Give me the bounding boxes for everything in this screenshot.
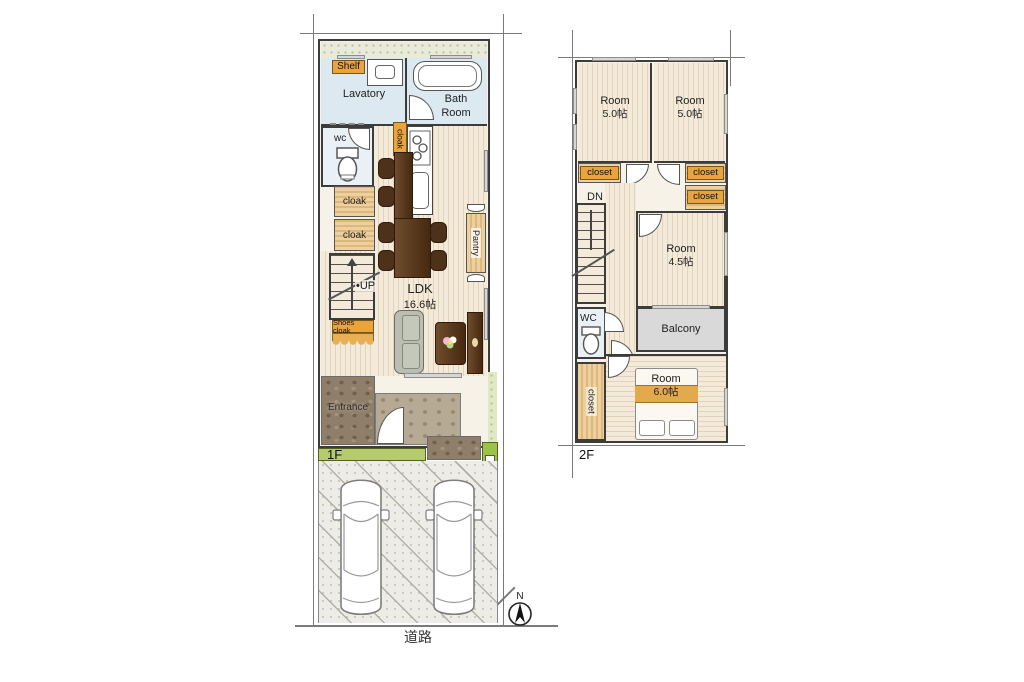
pantry-label: Pantry	[471, 228, 481, 258]
dining-table-lower	[394, 218, 431, 278]
dining-chair	[378, 186, 395, 207]
window	[573, 88, 577, 114]
pantry-closet: Pantry	[466, 213, 486, 273]
car	[424, 472, 484, 620]
window	[573, 124, 577, 150]
window	[430, 55, 472, 59]
closet-2f-right-bottom-chip: closet	[687, 190, 724, 204]
floor1-label: 1F	[327, 447, 342, 462]
shoes-cloak-awning-scallop	[332, 341, 374, 346]
hallway-2f	[605, 183, 636, 363]
closet-label: closet	[586, 387, 597, 416]
dining-chair	[378, 158, 395, 179]
dn-label: DN	[587, 191, 603, 203]
boundary-line-bottom-2f	[558, 445, 745, 446]
compass-icon	[506, 600, 534, 628]
room-size: 6.0帖	[653, 386, 678, 400]
window	[652, 305, 710, 309]
road-label: 道路	[390, 628, 446, 646]
room-name: Room	[675, 94, 704, 108]
room-45-label: Room 4.5帖	[645, 240, 717, 272]
room-size: 5.0帖	[602, 108, 627, 122]
cloak-upper-label: cloak	[343, 195, 366, 208]
bed-pillow	[669, 420, 695, 436]
side-hedge	[488, 372, 497, 442]
floor2-label: 2F	[579, 447, 594, 462]
window	[724, 94, 728, 134]
sofa-cushion	[402, 315, 420, 341]
stairs-up-arrowhead	[347, 258, 357, 266]
pantry-door-lower	[467, 274, 485, 282]
stairs-dn-arrow	[590, 210, 592, 250]
ldk-label: LDK 16.6帖	[388, 280, 452, 314]
closet-label: closet	[693, 192, 718, 202]
entrance-label: Entrance	[322, 400, 374, 414]
shoes-cloak-closet: Shoes cloak	[332, 320, 374, 333]
shelf-cabinet: Shelf	[332, 60, 365, 74]
toilet-icon-1f	[334, 147, 361, 184]
dining-chair	[378, 222, 395, 243]
window	[668, 57, 714, 61]
window	[484, 288, 488, 340]
car	[331, 472, 391, 620]
toilet-icon-2f	[580, 326, 602, 356]
floor-plan-canvas: Shelf Lavatory Bath Room wc cloak Pa	[0, 0, 1024, 682]
bed-pillow	[639, 420, 665, 436]
dining-chair	[430, 250, 447, 271]
room-name: Room	[600, 94, 629, 108]
dining-chair	[378, 250, 395, 271]
lavatory-label: Lavatory	[327, 86, 401, 102]
closet-2f-tall: closet	[576, 362, 606, 441]
window	[337, 55, 365, 59]
closet-label: closet	[693, 168, 718, 178]
bathtub-inner	[418, 65, 477, 87]
room-size: 4.5帖	[668, 256, 693, 270]
boundary-line-top-2f	[558, 57, 745, 58]
ldk-name: LDK	[407, 281, 432, 298]
living-sliding-window	[404, 373, 462, 378]
cloak-lower-label: cloak	[343, 229, 366, 242]
kitchen-cloak-label: cloak	[396, 129, 405, 149]
flower-decoration	[441, 333, 459, 351]
boundary-line-left-1f	[313, 14, 314, 625]
shoes-cloak-label: Shoes cloak	[333, 319, 373, 334]
closet-2f-left-chip: closet	[580, 166, 619, 180]
wc-label: wc	[334, 133, 346, 144]
window	[592, 57, 636, 61]
window	[724, 232, 728, 276]
room-name: Room	[651, 372, 680, 386]
closet-2f-right-top-chip: closet	[687, 166, 724, 180]
cloak-closet-lower: cloak	[334, 219, 375, 251]
tv-board-knob	[472, 338, 478, 347]
washing-machine-drum	[375, 65, 395, 79]
balcony-label: Balcony	[646, 321, 716, 337]
room-5b-label: Room 5.0帖	[659, 92, 721, 124]
shelf-label: Shelf	[337, 62, 360, 72]
boundary-line-right-2f	[730, 30, 731, 86]
room-name: Room	[666, 242, 695, 256]
up-label: •UP	[355, 280, 376, 292]
boundary-line-top-1f	[300, 33, 522, 34]
pantry-door-upper	[467, 204, 485, 212]
room-5a-label: Room 5.0帖	[584, 92, 646, 124]
sofa-cushion	[402, 343, 420, 369]
room-60-label: Room 6.0帖	[630, 371, 702, 401]
kitchen-sink-icon	[411, 172, 429, 209]
approach-path	[427, 436, 481, 460]
closet-label: closet	[587, 168, 612, 178]
window	[724, 388, 728, 426]
room-size: 5.0帖	[677, 108, 702, 122]
boundary-line-right-1f	[503, 14, 504, 625]
shoes-cloak-awning	[332, 333, 374, 341]
wc-2f-label: WC	[580, 313, 597, 324]
cloak-closet-upper: cloak	[334, 186, 375, 217]
bathroom-label: Bath Room	[430, 90, 482, 122]
dining-chair	[430, 222, 447, 243]
window	[484, 150, 488, 192]
kitchen-cloak-cabinet: cloak	[393, 122, 407, 156]
